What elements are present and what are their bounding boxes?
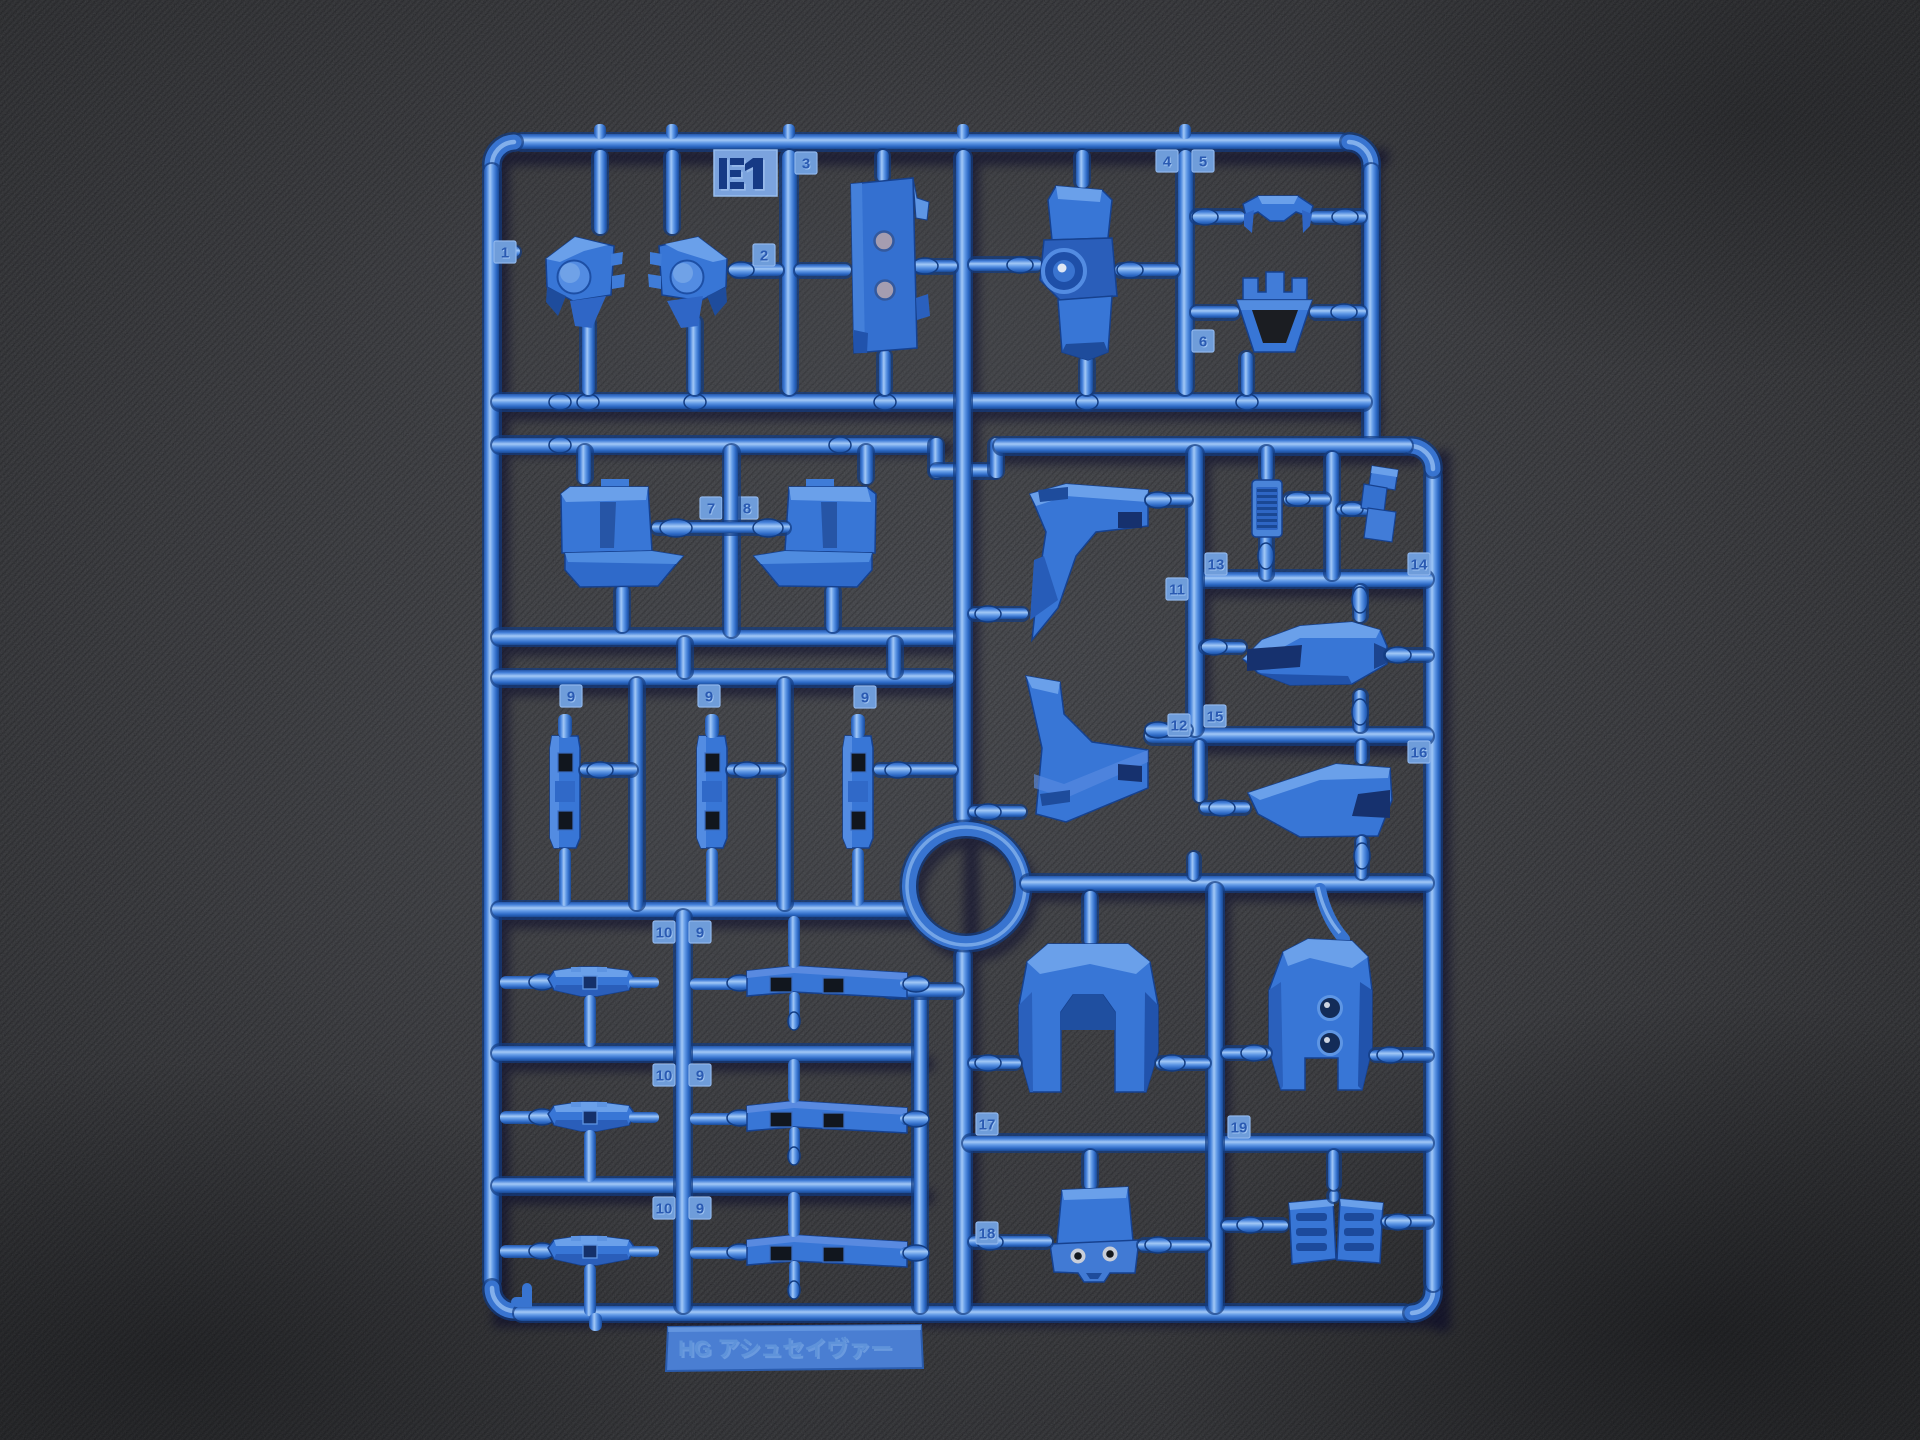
svg-text:2: 2 — [760, 247, 768, 264]
svg-text:6: 6 — [1199, 333, 1207, 350]
svg-text:7: 7 — [707, 500, 715, 517]
svg-text:9: 9 — [696, 924, 704, 941]
svg-text:8: 8 — [743, 500, 751, 517]
svg-text:9: 9 — [696, 1200, 704, 1217]
svg-text:1: 1 — [501, 244, 509, 261]
svg-text:10: 10 — [656, 1067, 673, 1084]
svg-text:16: 16 — [1411, 744, 1428, 761]
svg-text:9: 9 — [861, 689, 869, 706]
svg-text:10: 10 — [656, 924, 673, 941]
svg-text:9: 9 — [696, 1067, 704, 1084]
svg-text:4: 4 — [1163, 153, 1172, 170]
svg-text:9: 9 — [705, 688, 713, 705]
svg-text:17: 17 — [979, 1116, 996, 1133]
svg-text:3: 3 — [802, 155, 810, 172]
svg-text:13: 13 — [1208, 556, 1225, 573]
svg-text:HG アシュセイヴァー: HG アシュセイヴァー — [678, 1336, 892, 1361]
svg-text:15: 15 — [1207, 708, 1224, 725]
svg-text:19: 19 — [1231, 1119, 1248, 1136]
svg-text:5: 5 — [1199, 153, 1207, 170]
svg-text:10: 10 — [656, 1200, 673, 1217]
svg-text:9: 9 — [567, 688, 575, 705]
svg-text:18: 18 — [979, 1225, 996, 1242]
svg-text:11: 11 — [1169, 581, 1185, 598]
svg-text:14: 14 — [1411, 556, 1428, 573]
svg-text:12: 12 — [1171, 717, 1188, 734]
